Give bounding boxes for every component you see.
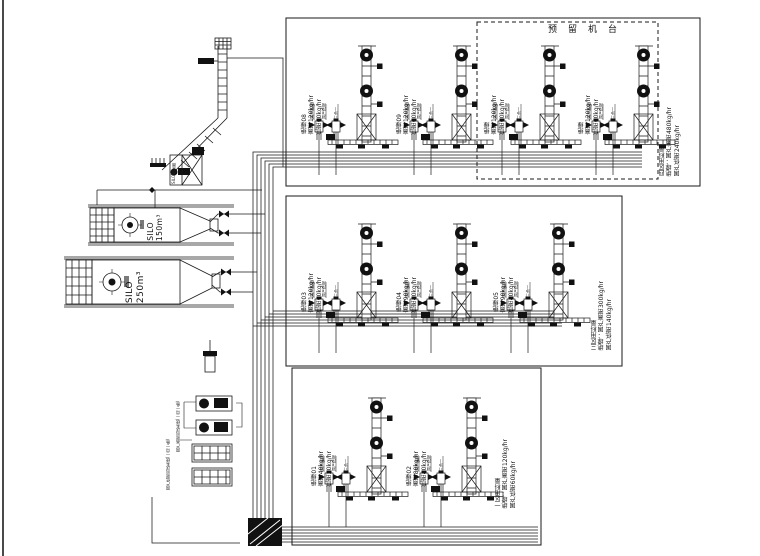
- machine-low-rate: 低密60kg/hr: [317, 277, 323, 312]
- machine-label-04: 绝缘04 高密90kg/hr 低密40kg/hr: [397, 230, 418, 312]
- machine-high-rate: 高密80kg/hr: [414, 451, 420, 486]
- blower-low-label: 国产低密风送系统(一用一备): [166, 439, 170, 490]
- silo-150-caption: SILO 150m³: [147, 210, 164, 241]
- machine-low-rate: 低密40kg/hr: [412, 277, 418, 312]
- machine-high-rate: 高密90kg/hr: [501, 277, 507, 312]
- machine-low-rate: 低密60kg/hr: [412, 99, 418, 134]
- machine-low-rate: 低密40kg/hr: [422, 451, 428, 486]
- fan-icon: [192, 147, 204, 155]
- blower-low-caption: 国产低密风送系统(一用一备): [166, 434, 170, 490]
- silo-name: SILO: [126, 281, 136, 303]
- blower-motor-icon: [199, 399, 209, 409]
- elevator-link-line: [227, 58, 283, 167]
- silo-250: [64, 257, 234, 307]
- pipe-elbow-block: [248, 518, 284, 546]
- machine-label-01: 绝缘01 高密40kg/hr 低密20kg/hr: [312, 404, 333, 486]
- dust-collector-label: SILO除尘器: [172, 163, 176, 184]
- machine-low-rate: 低密60kg/hr: [500, 99, 506, 134]
- machine-label-05: 绝缘05 高密90kg/hr 低密40kg/hr: [494, 230, 515, 312]
- silo-name: SILO: [147, 222, 155, 241]
- machine-high-rate: 高密120kg/hr: [309, 273, 315, 312]
- fin-radiator-icon: [150, 163, 166, 167]
- machine-high-rate: 高密40kg/hr: [319, 451, 325, 486]
- machine-low-rate: 低密20kg/hr: [327, 451, 333, 486]
- zone-note-line1: 绝缘：国产高密480kg/hr: [667, 107, 673, 176]
- zone3-feed-lines: [253, 311, 562, 326]
- zone-note-line2: 国产低密240kg/hr: [675, 125, 681, 176]
- valve-diamond-icon: [149, 187, 155, 193]
- silo-250-caption: SILO 250m³: [126, 262, 146, 303]
- buffer-hopper: [203, 340, 217, 372]
- silo-capacity: 250m³: [137, 271, 147, 303]
- dust-collector-caption: SILO除尘器: [172, 157, 176, 184]
- machine-label-03: 绝缘03 高密120kg/hr 低密60kg/hr: [302, 230, 323, 312]
- silo-capacity: 150m³: [156, 214, 164, 241]
- zone4-usage-note: 四区用料量 绝缘：国产高密480kg/hr 国产低密240kg/hr: [660, 88, 681, 176]
- zone-note-line2: 国产低密60kg/hr: [511, 461, 517, 508]
- silo-discharge-lines: [232, 214, 265, 292]
- blower-high-label: 国产高密风送系统(一用一备): [176, 401, 180, 452]
- machine-label-08: 绝缘08 高密120kg/hr 低密60kg/hr: [302, 52, 323, 134]
- machine-high-rate: 高密90kg/hr: [404, 277, 410, 312]
- zone-note-line1: 绝缘：国产高密300kg/hr: [599, 281, 605, 350]
- zone-note-line2: 国产低密140kg/hr: [607, 299, 613, 350]
- machine-label-reserved-1: 绝缘 高密120kg/hr 低密60kg/hr: [485, 52, 506, 134]
- zone-note-line1: 绝缘：国产高密120kg/hr: [503, 439, 509, 508]
- blower-station: [180, 396, 242, 486]
- valve-icon: [221, 289, 231, 296]
- machine-low-rate: 低密40kg/hr: [509, 277, 515, 312]
- machine-high-rate: 高密120kg/hr: [404, 95, 410, 134]
- reserved-area-label: 预留机台: [548, 22, 628, 35]
- machine-high-rate: 高密120kg/hr: [492, 95, 498, 134]
- valve-icon: [221, 269, 231, 276]
- zone1-usage-note: 一区用料量 绝缘：国产高密120kg/hr 国产低密60kg/hr: [496, 426, 517, 508]
- blower-room-wall: [152, 497, 240, 543]
- machine-label-02: 绝缘02 高密80kg/hr 低密40kg/hr: [407, 404, 428, 486]
- blower-high-caption: 国产高密风送系统(一用一备): [176, 396, 180, 452]
- cad-drawing-canvas: 国产高密 国产低密 三合一: [0, 0, 760, 556]
- machine-high-rate: 高密120kg/hr: [309, 95, 315, 134]
- machine-low-rate: 低密60kg/hr: [317, 99, 323, 134]
- machine-label-09: 绝缘09 高密120kg/hr 低密60kg/hr: [397, 52, 418, 134]
- valve-icon: [219, 211, 229, 218]
- machine-low-rate: 低密60kg/hr: [594, 99, 600, 134]
- machine-label-reserved-2: 绝缘 高密120kg/hr 低密60kg/hr: [579, 52, 600, 134]
- dust-collector: [150, 147, 204, 185]
- piping-diagram: 国产高密 国产低密 三合一: [0, 0, 760, 556]
- blower-motor-icon: [199, 423, 209, 433]
- zone3-usage-note: 三区用料量 绝缘：国产高密300kg/hr 国产低密140kg/hr: [592, 262, 613, 350]
- valve-icon: [219, 230, 229, 237]
- machine-high-rate: 高密120kg/hr: [586, 95, 592, 134]
